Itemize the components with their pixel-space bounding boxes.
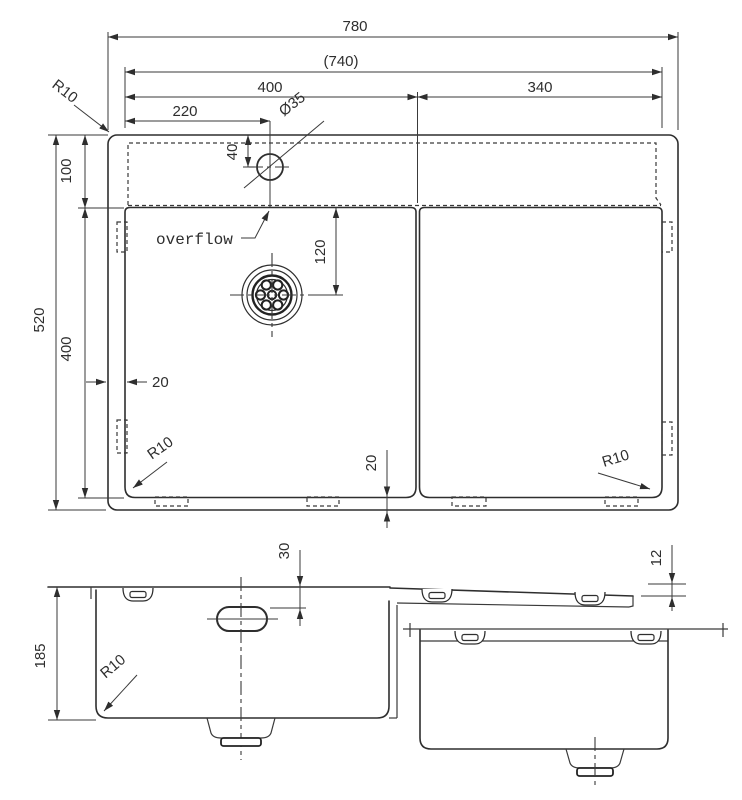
dim-r10-tl-label: R10 [49, 76, 81, 106]
dim-r10-br-label: R10 [600, 447, 631, 471]
drain-front [207, 718, 275, 746]
dim-220: 220 [125, 103, 270, 121]
overflow-label: overflow [156, 231, 233, 249]
overflow-callout: overflow [156, 211, 269, 249]
front-view: 185 30 12 R10 [32, 543, 686, 760]
dim-120: 120 [310, 208, 343, 295]
dim-185-label: 185 [32, 643, 49, 668]
drain-top [230, 253, 314, 337]
dim-12-label: 12 [648, 550, 665, 567]
dim-100-label: 100 [58, 158, 75, 183]
dim-30: 30 [270, 543, 306, 626]
left-bowl-outline [125, 208, 416, 498]
dim-20-bottom: 20 [363, 450, 387, 528]
dim-520: 520 [31, 135, 106, 510]
sink-drawing-svg: 780 (740) 400 340 220 Ø35 R10 100 [0, 0, 742, 800]
dim-400v-label: 400 [58, 336, 75, 361]
dim-400-340: 400 340 [125, 79, 662, 203]
right-bowl-profile [420, 630, 668, 749]
faucet-hole [244, 121, 324, 207]
top-view: 780 (740) 400 340 220 Ø35 R10 100 [31, 18, 678, 528]
dim-20l-label: 20 [152, 374, 169, 391]
dim-30-label: 30 [276, 543, 293, 560]
overflow-slot [207, 607, 278, 631]
dim-120-label: 120 [312, 239, 329, 264]
dim-r10-top-left: R10 [49, 76, 109, 132]
dim-20b-label: 20 [363, 455, 380, 472]
dim-740: (740) [125, 53, 662, 128]
dim-740-label: (740) [323, 53, 358, 70]
dim-r10-front: R10 [97, 651, 137, 711]
technical-drawing: 780 (740) 400 340 220 Ø35 R10 100 [0, 0, 742, 800]
dim-220-label: 220 [172, 103, 197, 120]
dim-40-label: 40 [224, 144, 241, 161]
dim-r10-bottom-left: R10 [133, 433, 177, 488]
drain-side [566, 737, 624, 786]
dim-r10-bl-label: R10 [144, 433, 176, 463]
left-bowl-profile [96, 590, 389, 718]
dim-780-label: 780 [342, 18, 367, 35]
dim-400-vertical: 400 [58, 208, 124, 498]
dim-r10-bottom-right: R10 [598, 447, 650, 489]
dim-12: 12 [641, 545, 686, 611]
dim-40: 40 [224, 135, 260, 167]
hidden-clips [117, 222, 672, 506]
dim-20-left: 20 [86, 374, 169, 391]
ledge-hidden-edges [128, 143, 661, 206]
dim-185: 185 [32, 587, 96, 720]
sink-outer-edge [108, 135, 678, 510]
dim-r10-front-label: R10 [97, 651, 129, 682]
faucet-dia-leader [244, 121, 324, 188]
dim-520-label: 520 [31, 307, 48, 332]
dim-100: 100 [48, 135, 124, 208]
dim-400-label: 400 [257, 79, 282, 96]
dim-340-label: 340 [527, 79, 552, 96]
side-section-view [403, 623, 728, 786]
